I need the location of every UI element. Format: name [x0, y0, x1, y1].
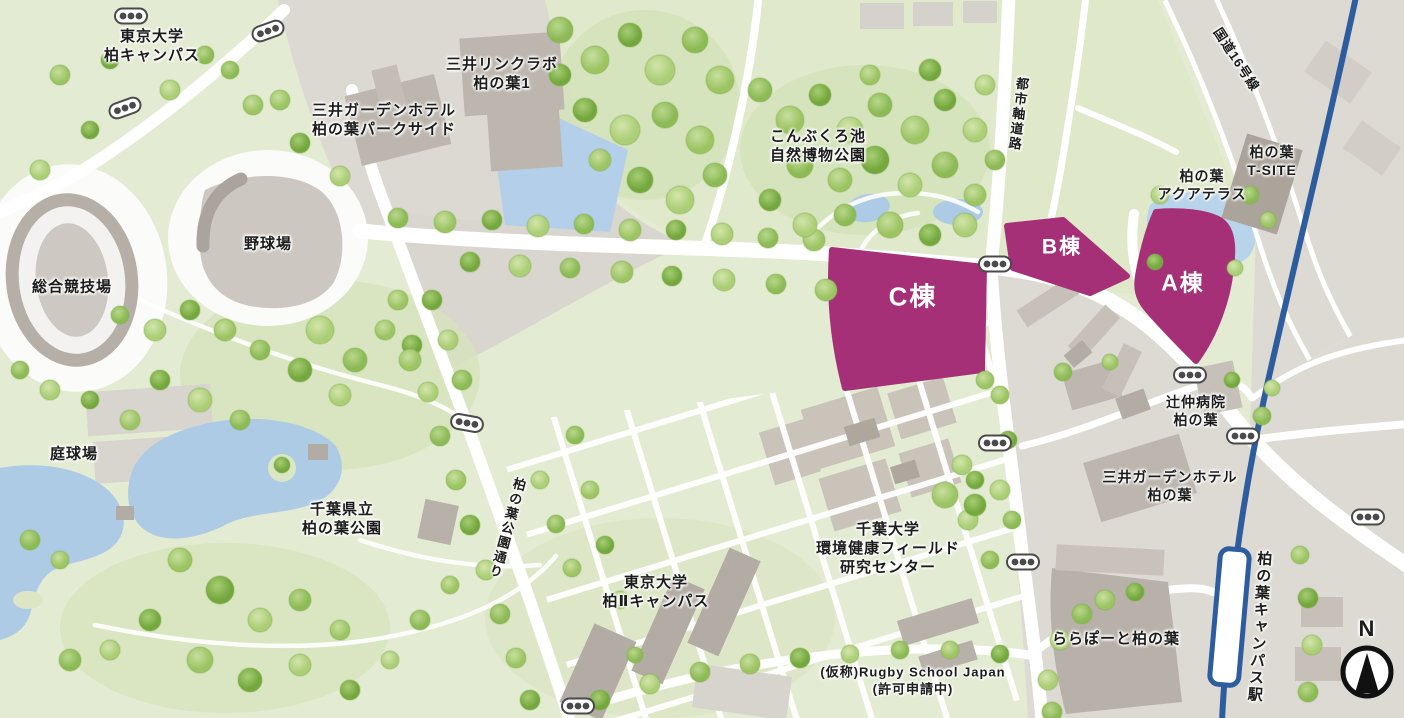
- tree-icon: [627, 167, 653, 193]
- tree-icon: [460, 515, 480, 535]
- north-compass-icon: [1343, 648, 1391, 696]
- tree-icon: [834, 204, 856, 226]
- tree-icon: [560, 258, 580, 278]
- tree-icon: [1241, 186, 1259, 204]
- tree-icon: [748, 78, 772, 102]
- tree-icon: [100, 640, 120, 660]
- traffic-signal-icon: [979, 436, 1011, 451]
- tree-icon: [520, 690, 540, 710]
- tree-icon: [574, 214, 594, 234]
- tree-icon: [51, 551, 69, 569]
- tree-icon: [703, 163, 727, 187]
- tree-icon: [422, 290, 442, 310]
- building: [963, 1, 997, 23]
- tree-icon: [214, 319, 236, 341]
- tree-icon: [187, 647, 213, 673]
- tree-icon: [645, 55, 675, 85]
- tree-icon: [790, 648, 810, 668]
- tree-icon: [566, 426, 584, 444]
- tree-icon: [1291, 546, 1309, 564]
- traffic-signal-icon: [1352, 510, 1384, 525]
- tree-icon: [891, 641, 909, 659]
- tree-icon: [243, 95, 263, 115]
- tree-icon: [975, 75, 995, 95]
- tree-icon: [180, 300, 200, 320]
- tree-icon: [861, 146, 889, 174]
- tree-icon: [410, 610, 430, 630]
- building: [860, 3, 904, 29]
- tree-icon: [81, 121, 99, 139]
- tree-icon: [1227, 260, 1243, 276]
- tree-icon: [1095, 590, 1115, 610]
- tree-icon: [188, 388, 212, 412]
- tree-icon: [690, 662, 710, 682]
- tree-icon: [581, 481, 599, 499]
- tree-icon: [434, 211, 456, 233]
- building: [116, 506, 134, 520]
- tree-icon: [329, 384, 351, 406]
- tree-icon: [30, 160, 50, 180]
- tree-icon: [452, 370, 472, 390]
- tree-icon: [666, 186, 694, 214]
- tree-icon: [713, 269, 735, 291]
- tree-icon: [991, 645, 1009, 663]
- tree-icon: [144, 319, 166, 341]
- tree-icon: [168, 548, 192, 572]
- traffic-signal-icon: [115, 9, 147, 24]
- tree-icon: [627, 647, 643, 663]
- tree-icon: [966, 471, 984, 489]
- tree-icon: [815, 279, 837, 301]
- traffic-signal-icon: [562, 699, 594, 714]
- tree-icon: [589, 149, 611, 171]
- tree-icon: [990, 480, 1010, 500]
- tree-icon: [1038, 670, 1058, 690]
- tree-icon: [248, 608, 272, 632]
- map-canvas: [0, 0, 1404, 718]
- tree-icon: [976, 371, 994, 389]
- tree-icon: [59, 649, 81, 671]
- building: [308, 444, 328, 460]
- tree-icon: [388, 290, 408, 310]
- tree-icon: [1151, 186, 1169, 204]
- tree-icon: [238, 668, 262, 692]
- tree-icon: [1260, 212, 1276, 228]
- tree-icon: [290, 133, 310, 153]
- tree-icon: [787, 152, 813, 178]
- tree-icon: [563, 559, 581, 577]
- tree-icon: [640, 674, 660, 694]
- building: [913, 2, 953, 26]
- tree-icon: [652, 102, 678, 128]
- tree-icon: [686, 126, 714, 154]
- tree-icon: [111, 306, 129, 324]
- tree-icon: [509, 255, 531, 277]
- tree-icon: [399, 349, 421, 371]
- tree-icon: [877, 212, 903, 238]
- tree-icon: [330, 166, 350, 186]
- tree-icon: [766, 274, 786, 294]
- tree-icon: [20, 530, 40, 550]
- tree-icon: [50, 65, 70, 85]
- tree-icon: [250, 340, 270, 360]
- tree-icon: [1072, 604, 1092, 624]
- tree-icon: [490, 604, 510, 624]
- tree-icon: [418, 382, 438, 402]
- kashiwanoha-map: 東京大学柏キャンパス三井リンクラボ柏の葉1三井ガーデンホテル柏の葉パークサイドこ…: [0, 0, 1404, 718]
- tree-icon: [1102, 354, 1118, 370]
- tree-icon: [953, 213, 977, 237]
- tree-icon: [160, 80, 180, 100]
- tree-icon: [506, 648, 526, 668]
- tree-icon: [1298, 682, 1318, 702]
- tree-icon: [531, 471, 549, 489]
- tree-icon: [549, 64, 571, 86]
- tree-icon: [1042, 702, 1062, 718]
- tree-icon: [1050, 630, 1070, 650]
- tree-icon: [288, 358, 312, 382]
- tree-icon: [40, 380, 60, 400]
- building-c-shape: [831, 250, 984, 388]
- tree-icon: [150, 370, 170, 390]
- tree-icon: [985, 150, 1005, 170]
- tree-icon: [952, 455, 972, 475]
- tree-icon: [340, 680, 360, 700]
- tree-icon: [139, 609, 161, 631]
- tree-icon: [758, 228, 778, 248]
- tree-icon: [1264, 380, 1280, 396]
- tree-icon: [706, 66, 734, 94]
- tree-icon: [837, 117, 863, 143]
- tree-icon: [860, 65, 880, 85]
- tree-icon: [964, 184, 986, 206]
- tree-icon: [120, 410, 140, 430]
- tree-icon: [527, 215, 549, 237]
- tree-icon: [901, 116, 929, 144]
- tree-icon: [776, 106, 804, 134]
- traffic-signal-icon: [979, 257, 1011, 272]
- tree-icon: [618, 23, 642, 47]
- tree-icon: [1054, 363, 1072, 381]
- tree-icon: [274, 457, 290, 473]
- tree-icon: [430, 426, 450, 446]
- tree-icon: [230, 410, 250, 430]
- tree-icon: [711, 223, 733, 245]
- tree-icon: [934, 89, 956, 111]
- tree-icon: [581, 46, 609, 74]
- tree-icon: [1003, 511, 1021, 529]
- tree-icon: [221, 61, 239, 79]
- traffic-signal-icon: [1227, 429, 1259, 444]
- tree-icon: [1224, 372, 1240, 388]
- tree-icon: [1147, 254, 1163, 270]
- tree-icon: [619, 219, 641, 241]
- tree-icon: [919, 224, 941, 246]
- tree-icon: [919, 59, 941, 81]
- tree-icon: [206, 576, 234, 604]
- traffic-signal-icon: [1007, 555, 1039, 570]
- tree-icon: [1302, 635, 1322, 655]
- tree-icon: [270, 90, 290, 110]
- tree-icon: [381, 651, 399, 669]
- tree-icon: [662, 266, 682, 286]
- tree-icon: [981, 551, 999, 569]
- tree-icon: [289, 654, 311, 676]
- tree-icon: [1253, 407, 1271, 425]
- tree-icon: [375, 320, 395, 340]
- tree-icon: [759, 189, 781, 211]
- tree-icon: [476, 560, 496, 580]
- tree-icon: [289, 589, 311, 611]
- tree-icon: [482, 210, 502, 230]
- tree-icon: [682, 27, 708, 53]
- tree-icon: [547, 17, 573, 43]
- tree-icon: [101, 51, 119, 69]
- tree-icon: [573, 98, 597, 122]
- tree-icon: [343, 348, 367, 372]
- building: [487, 109, 563, 172]
- tree-icon: [666, 220, 686, 240]
- tree-icon: [932, 152, 958, 178]
- tree-icon: [611, 261, 633, 283]
- tree-icon: [388, 208, 408, 228]
- tree-icon: [932, 482, 958, 508]
- tree-icon: [196, 46, 214, 64]
- tree-icon: [596, 536, 614, 554]
- tree-icon: [809, 84, 831, 106]
- tree-icon: [964, 494, 986, 516]
- tree-icon: [11, 361, 29, 379]
- tree-icon: [330, 620, 350, 640]
- tree-icon: [306, 316, 334, 344]
- tree-icon: [547, 515, 565, 533]
- tree-icon: [610, 115, 640, 145]
- tree-icon: [740, 654, 760, 674]
- tree-icon: [868, 93, 892, 117]
- tree-icon: [81, 391, 99, 409]
- tree-icon: [991, 386, 1009, 404]
- tree-icon: [793, 213, 817, 237]
- tree-icon: [841, 645, 859, 663]
- tree-icon: [898, 173, 922, 197]
- tree-icon: [438, 330, 458, 350]
- traffic-signal-icon: [1174, 368, 1206, 383]
- tree-icon: [1126, 583, 1144, 601]
- tree-icon: [963, 118, 987, 142]
- tree-icon: [1298, 588, 1318, 608]
- tree-icon: [441, 576, 459, 594]
- tree-icon: [446, 470, 466, 490]
- tree-icon: [828, 168, 852, 192]
- tree-icon: [941, 641, 959, 659]
- tree-icon: [460, 252, 480, 272]
- tree-icon: [611, 591, 629, 609]
